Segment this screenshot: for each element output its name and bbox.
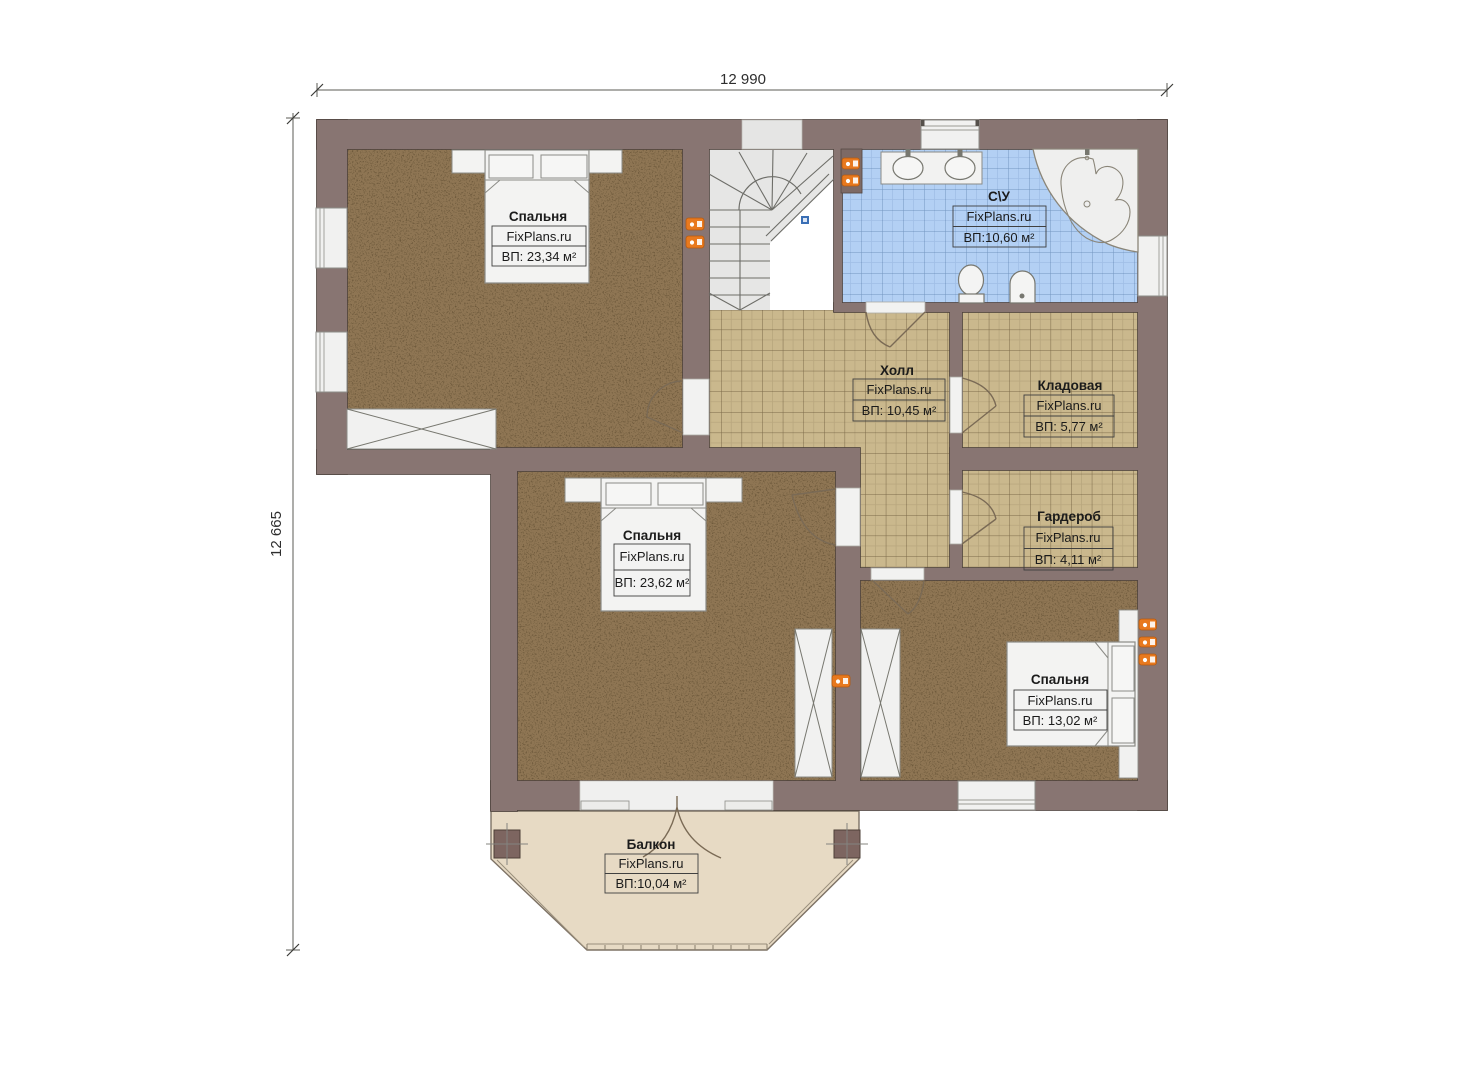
svg-text:FixPlans.ru: FixPlans.ru <box>1027 693 1092 708</box>
svg-text:Гардероб: Гардероб <box>1037 509 1101 524</box>
svg-text:Холл: Холл <box>880 363 914 378</box>
svg-text:FixPlans.ru: FixPlans.ru <box>506 229 571 244</box>
svg-text:FixPlans.ru: FixPlans.ru <box>966 209 1031 224</box>
svg-text:FixPlans.ru: FixPlans.ru <box>1036 398 1101 413</box>
svg-text:12 665: 12 665 <box>268 511 285 557</box>
svg-text:Спальня: Спальня <box>1031 672 1089 687</box>
svg-text:Спальня: Спальня <box>509 209 567 224</box>
svg-text:ВП: 13,02 м²: ВП: 13,02 м² <box>1023 713 1098 728</box>
svg-text:ВП:10,60 м²: ВП:10,60 м² <box>963 230 1035 245</box>
svg-text:Спальня: Спальня <box>623 528 681 543</box>
svg-text:FixPlans.ru: FixPlans.ru <box>619 549 684 564</box>
svg-text:Кладовая: Кладовая <box>1038 378 1103 393</box>
svg-text:ВП: 4,11 м²: ВП: 4,11 м² <box>1035 552 1102 567</box>
svg-text:ВП: 10,45 м²: ВП: 10,45 м² <box>862 403 937 418</box>
svg-text:FixPlans.ru: FixPlans.ru <box>618 856 683 871</box>
svg-text:FixPlans.ru: FixPlans.ru <box>1035 530 1100 545</box>
svg-text:С\У: С\У <box>988 189 1011 204</box>
svg-text:Балкон: Балкон <box>627 837 676 852</box>
svg-text:12 990: 12 990 <box>720 71 766 88</box>
svg-text:FixPlans.ru: FixPlans.ru <box>866 382 931 397</box>
svg-text:ВП: 5,77 м²: ВП: 5,77 м² <box>1035 419 1103 434</box>
svg-text:ВП: 23,62 м²: ВП: 23,62 м² <box>615 575 690 590</box>
svg-text:ВП:10,04 м²: ВП:10,04 м² <box>615 876 687 891</box>
svg-text:ВП: 23,34 м²: ВП: 23,34 м² <box>502 249 577 264</box>
